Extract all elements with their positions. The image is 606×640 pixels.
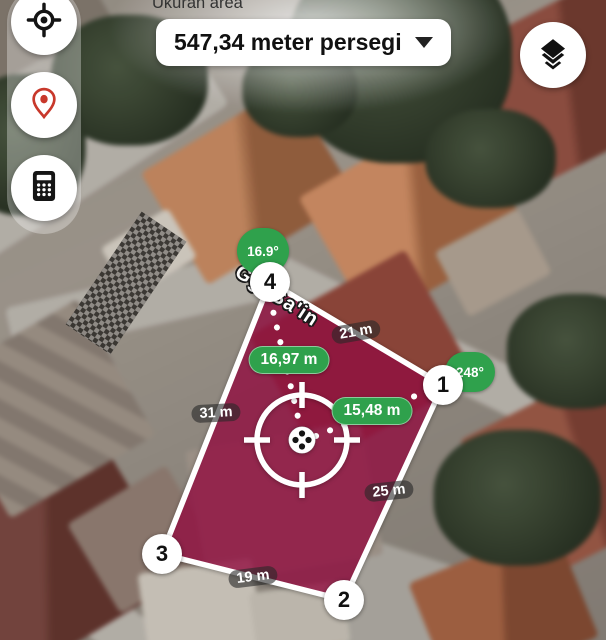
vertex-marker-3[interactable]: 3 — [142, 534, 182, 574]
area-value-text: 547,34 meter persegi — [174, 29, 402, 56]
caret-down-icon — [415, 37, 433, 48]
area-measure-app: Gg. Sa'in 21 m 25 m 19 m 31 m 16,97 m 15… — [0, 0, 606, 640]
vertex-marker-1[interactable]: 1 — [423, 365, 463, 405]
area-value-dropdown[interactable]: 547,34 meter persegi — [156, 19, 451, 66]
layers-icon — [534, 34, 572, 77]
add-pin-button[interactable] — [11, 72, 77, 138]
edge-length-label: 31 m — [191, 403, 241, 424]
area-header-label: Ukuran area — [152, 0, 243, 13]
map-pin-icon — [27, 86, 61, 125]
calculator-icon — [25, 167, 63, 210]
gps-locate-icon — [26, 2, 62, 43]
vertex-marker-4[interactable]: 4 — [250, 262, 290, 302]
map-layers-button[interactable] — [520, 22, 586, 88]
radial-distance-pill: 15,48 m — [332, 397, 413, 425]
radial-distance-pill: 16,97 m — [249, 346, 330, 374]
calculator-button[interactable] — [11, 155, 77, 221]
vertex-marker-2[interactable]: 2 — [324, 580, 364, 620]
